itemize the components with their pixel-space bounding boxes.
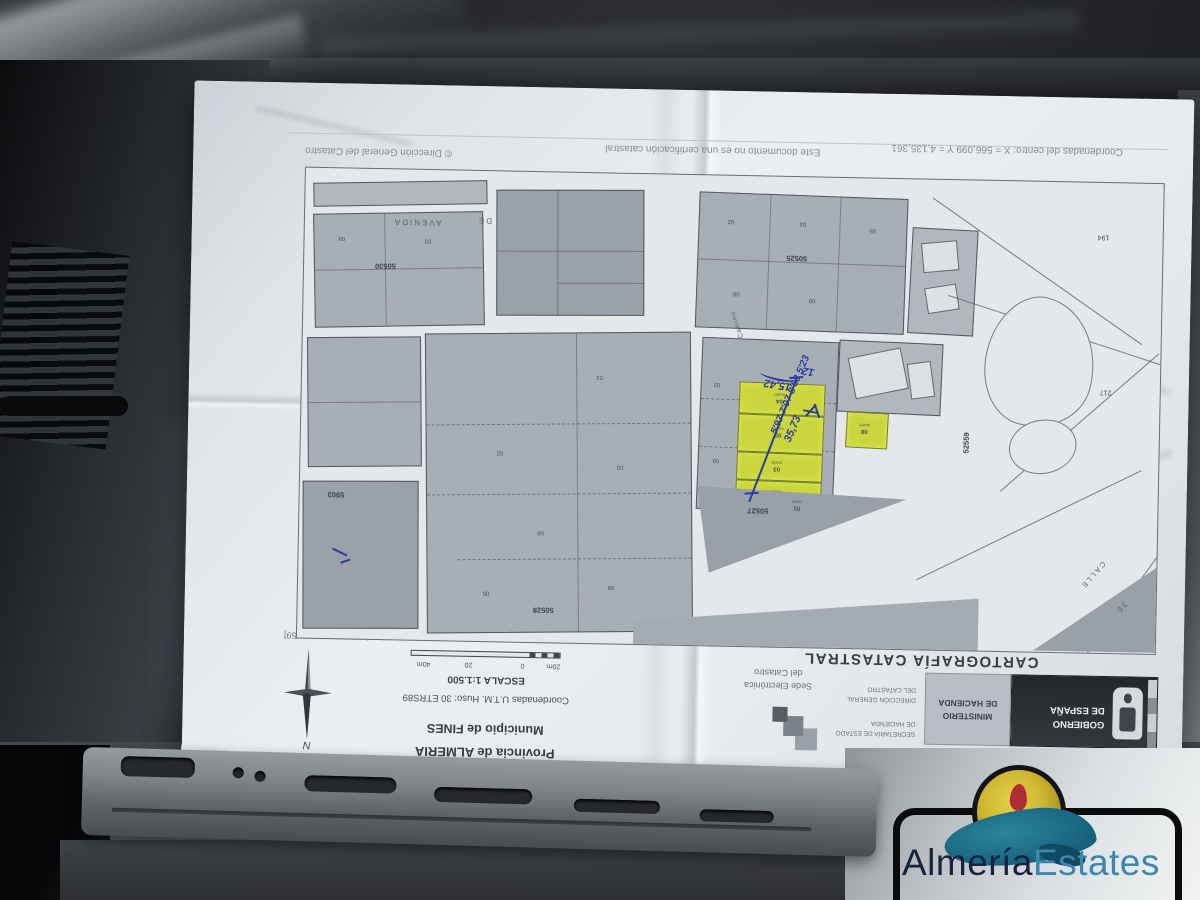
block-number: 5903	[328, 490, 345, 499]
parcel-number: 03	[617, 463, 624, 470]
city-block	[836, 340, 943, 417]
map-area: 50530 04 03 AVENIDA DE 5903	[296, 167, 1165, 655]
block-number: 50527	[747, 506, 768, 515]
highlighted-parcel: 08suelo	[845, 411, 889, 449]
compass-rose-icon	[279, 646, 337, 739]
land-number: 217	[1100, 388, 1112, 396]
block-number: 50530	[375, 261, 396, 270]
parcel-number: 02	[714, 380, 721, 387]
parcel-number: 05	[483, 589, 490, 596]
city-block-triangle	[691, 480, 911, 580]
city-block: 01 02 03 06 09 05 50528	[425, 332, 693, 634]
street-label-de: DE	[477, 216, 492, 225]
scale-bar: 20m 0 20 40m	[410, 647, 560, 670]
sede-electronica-label: Sede Electrónica del Catastro	[720, 665, 836, 692]
paper-wrinkle	[255, 105, 412, 147]
spain-flag-icon	[1147, 680, 1157, 748]
document-title: CARTOGRAFÍA CATASTRAL	[803, 649, 1038, 671]
parcel-number: 06	[537, 529, 544, 536]
secretary-label: SECRETARÍA DE ESTADO DE HACIENDA	[836, 717, 916, 738]
disclaimer-text: Este documento no es una certificación c…	[605, 142, 820, 157]
land-number: 194	[1098, 233, 1110, 241]
highlighted-parcel: 03suelo	[736, 451, 823, 482]
ministry-box: MINISTERIO DE HACIENDA	[924, 673, 1011, 747]
street-label-calle: CALLE	[1079, 560, 1108, 591]
cadastral-map-sheet: © Dirección General del Catastro Este do…	[182, 80, 1195, 775]
block-number: 50525	[786, 254, 807, 264]
watermark-brand-part2: Estates	[1033, 842, 1160, 883]
coat-of-arms-icon	[1112, 687, 1143, 740]
watermark-brand-part1: Almería	[902, 842, 1033, 883]
city-block	[496, 190, 644, 316]
parcel-number: 08	[733, 290, 740, 297]
north-label: N	[272, 738, 342, 751]
center-coordinates-text: Coordenadas del centro: X = 566,099 Y = …	[891, 142, 1123, 157]
parcel-boundary	[916, 470, 1141, 580]
parcel-number: 03suelo	[771, 460, 782, 472]
sede-checker-icon	[772, 707, 787, 722]
city-block	[302, 481, 418, 629]
government-logo-band: GOBIERNO DE ESPAÑA	[1010, 674, 1158, 749]
north-compass: N	[272, 640, 344, 751]
parcel-number: 02	[497, 449, 504, 456]
copyright-text: © Dirección General del Catastro	[305, 145, 452, 159]
city-block: 50530 04 03	[313, 211, 485, 328]
city-block: 50525 02 03 05 08 09	[695, 191, 909, 335]
parcel-number: 08suelo	[859, 422, 870, 434]
government-label: GOBIERNO DE ESPAÑA	[1050, 702, 1105, 731]
parcel-number: 09	[713, 456, 720, 463]
parcel-number: 09	[809, 296, 816, 303]
parcel-number: 03	[424, 237, 431, 244]
block-number: 52559	[961, 432, 970, 453]
city-block	[307, 336, 422, 467]
city-block	[313, 180, 487, 207]
parcel-number: 02	[728, 217, 735, 224]
photo-scene: © Dirección General del Catastro Este do…	[0, 0, 1200, 900]
city-block	[907, 227, 979, 336]
land-parcel-blob	[1004, 414, 1081, 480]
street-label-avenida: AVENIDA	[393, 217, 442, 227]
parcel-number: 03	[800, 220, 807, 227]
scale-label: ESCALA 1:1.500	[366, 672, 606, 688]
block-number: 50528	[533, 606, 554, 615]
watermark-brand: AlmeríaEstates	[902, 842, 1160, 884]
utm-label: Coordenadas U.T.M. Huso: 30 ETRS89	[366, 691, 606, 707]
parcel-number: 01suelo	[791, 499, 802, 511]
parcel-number: 09	[608, 583, 615, 590]
directorate-label: DIRECCIÓN GENERAL DEL CATASTRO	[846, 684, 916, 705]
parcel-number: 04	[338, 234, 345, 241]
parcel-number: 05	[869, 227, 876, 234]
municipality-label: Municipio de FINES	[365, 720, 605, 739]
parcel-number: 01	[596, 373, 603, 380]
dashboard-slot	[0, 396, 128, 416]
